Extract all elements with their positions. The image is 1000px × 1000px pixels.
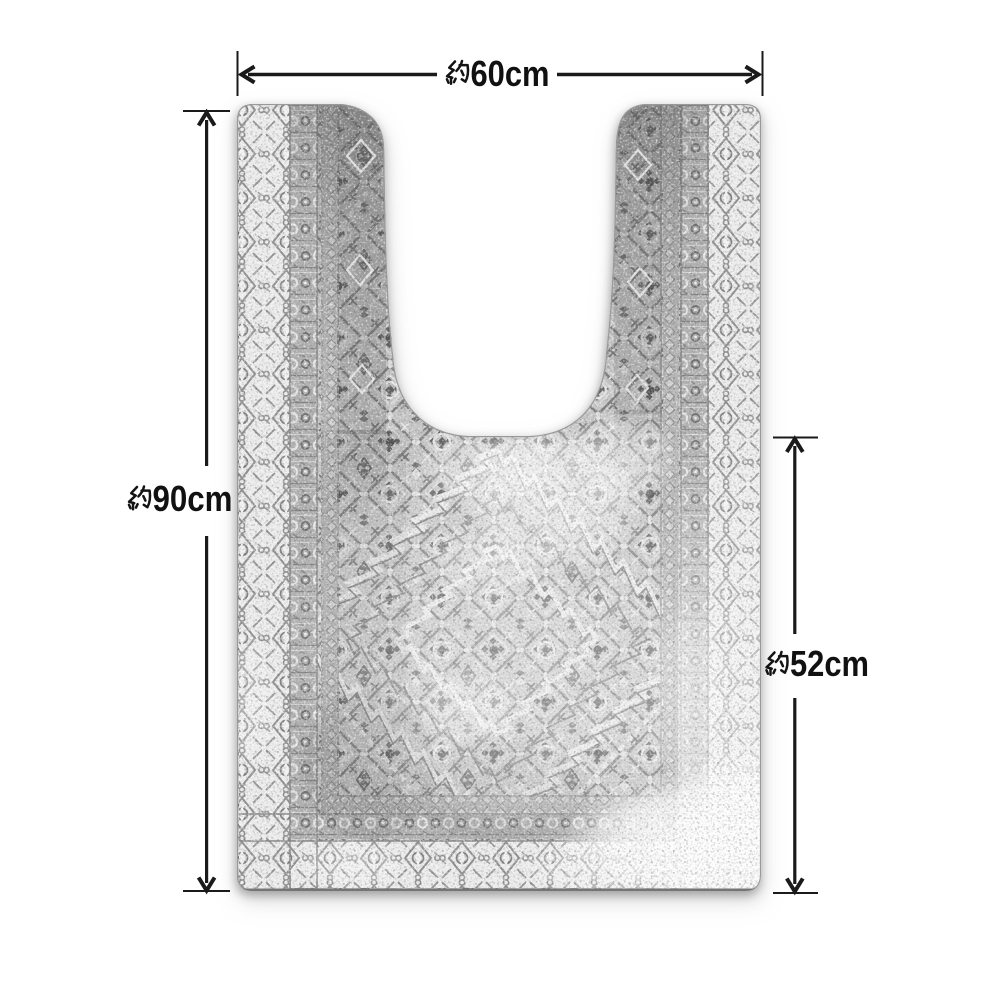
svg-text:90cm: 90cm xyxy=(153,478,233,519)
svg-text:52cm: 52cm xyxy=(790,643,869,684)
svg-text:60cm: 60cm xyxy=(471,53,550,94)
